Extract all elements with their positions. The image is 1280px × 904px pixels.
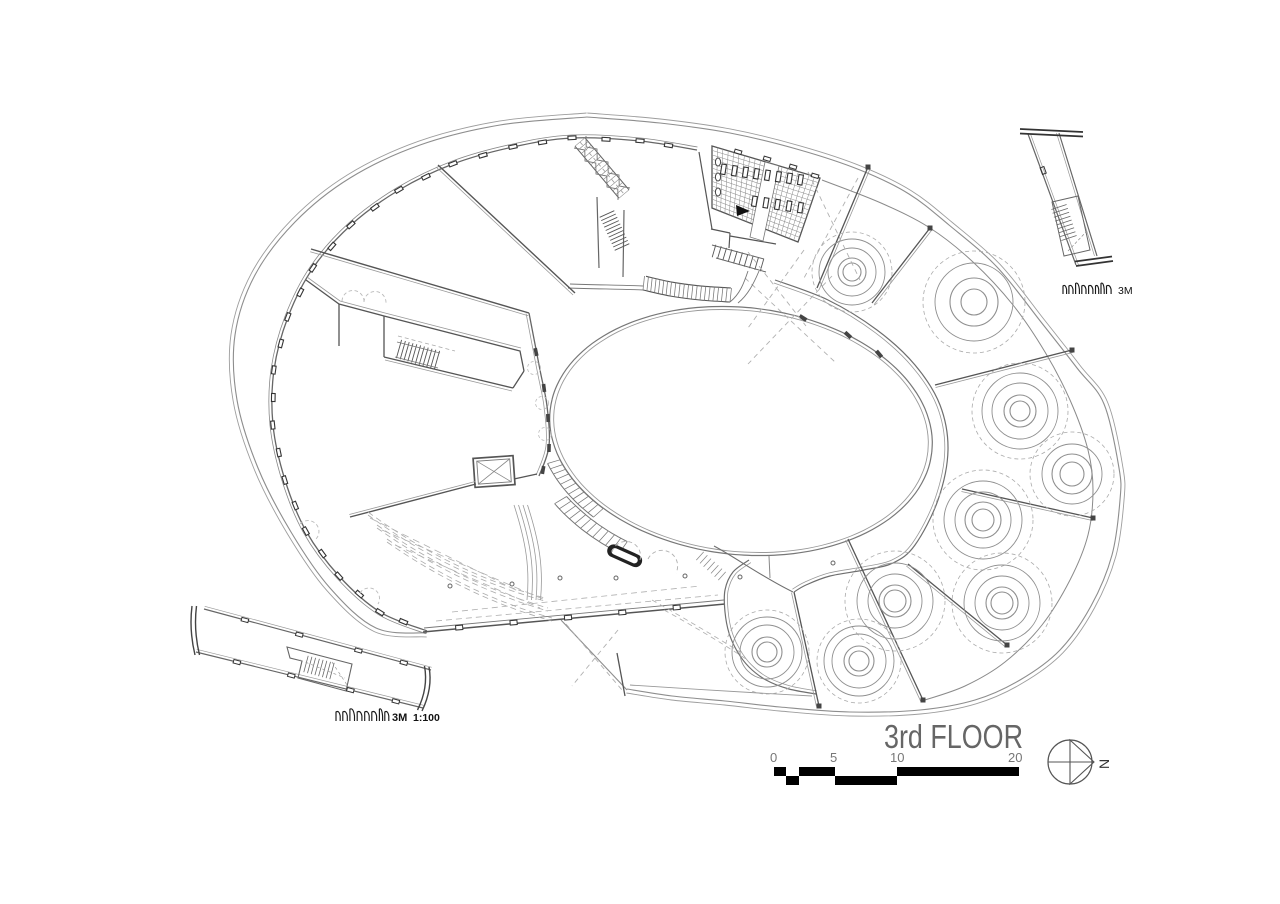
- svg-text:0: 0: [770, 750, 777, 765]
- svg-text:20: 20: [1008, 750, 1022, 765]
- svg-text:5: 5: [830, 750, 837, 765]
- svg-text:3M: 3M: [1118, 285, 1133, 297]
- svg-text:N: N: [1096, 759, 1112, 769]
- svg-text:3rd FLOOR: 3rd FLOOR: [884, 718, 1023, 755]
- svg-text:1:100: 1:100: [413, 712, 440, 724]
- svg-text:3M: 3M: [392, 712, 407, 724]
- svg-text:10: 10: [890, 750, 904, 765]
